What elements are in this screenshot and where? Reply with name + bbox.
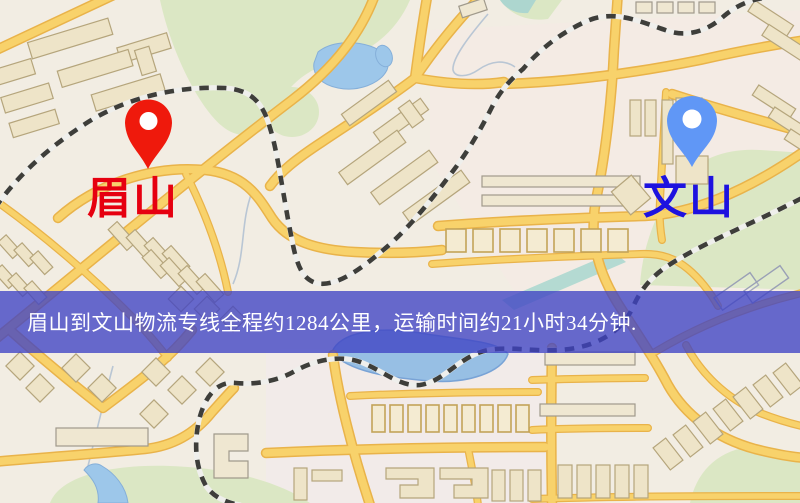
- destination-label: 文山: [643, 177, 735, 221]
- map-image: 眉山 文山 眉山到文山物流专线全程约1284公里，运输时间约21小时34分钟.: [0, 0, 800, 503]
- route-banner-text: 眉山到文山物流专线全程约1284公里，运输时间约21小时34分钟.: [27, 307, 637, 337]
- route-banner: 眉山到文山物流专线全程约1284公里，运输时间约21小时34分钟.: [0, 291, 800, 353]
- map-canvas: [0, 0, 800, 503]
- origin-label: 眉山: [87, 177, 179, 221]
